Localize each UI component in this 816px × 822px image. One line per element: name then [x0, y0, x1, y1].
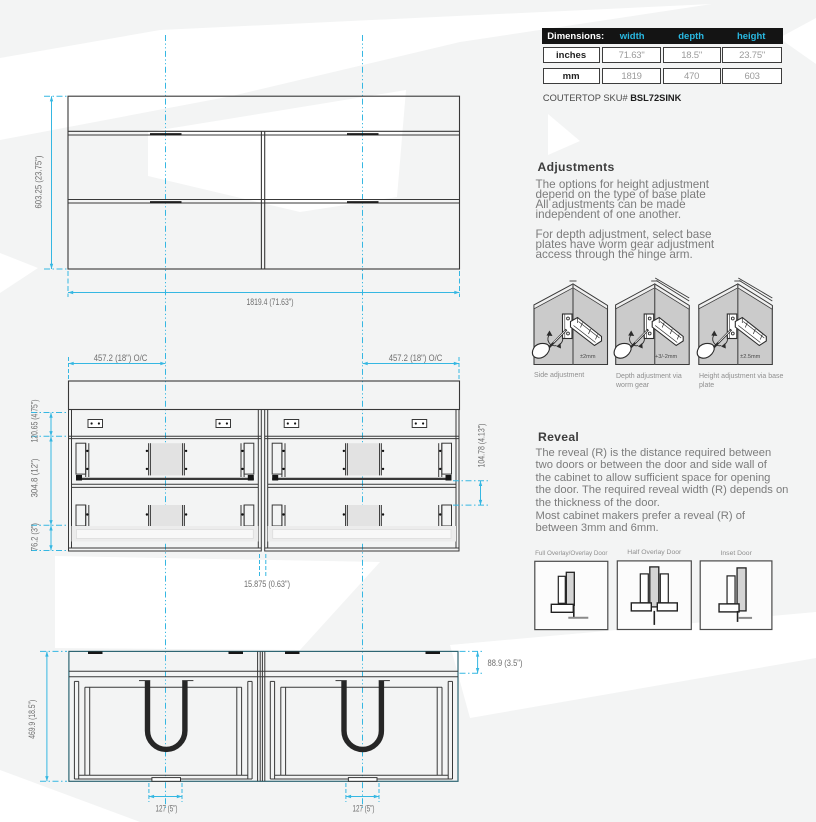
svg-text:15.875 (0.63"): 15.875 (0.63") [244, 579, 290, 589]
svg-text:+3/-2mm: +3/-2mm [655, 354, 678, 360]
svg-text:127 (5"): 127 (5") [156, 804, 178, 814]
svg-text:603.25 (23.75"): 603.25 (23.75") [34, 156, 44, 209]
svg-text:±2mm: ±2mm [580, 354, 596, 360]
svg-text:457.2 (18") O/C: 457.2 (18") O/C [389, 353, 443, 363]
svg-text:457.2 (18") O/C: 457.2 (18") O/C [94, 353, 148, 363]
svg-text:88.9 (3.5"): 88.9 (3.5") [488, 658, 523, 668]
svg-text:104.78 (4.13"): 104.78 (4.13") [477, 424, 487, 468]
svg-text:±2.5mm: ±2.5mm [740, 354, 761, 360]
svg-text:1819.4 (71.63"): 1819.4 (71.63") [247, 297, 294, 307]
svg-text:469.9 (18.5"): 469.9 (18.5") [27, 700, 37, 739]
svg-text:76.2 (3"): 76.2 (3") [30, 523, 40, 551]
svg-text:304.8 (12"): 304.8 (12") [30, 459, 40, 498]
svg-text:127 (5"): 127 (5") [353, 804, 375, 814]
svg-text:120.65 (4.75"): 120.65 (4.75") [30, 400, 40, 443]
